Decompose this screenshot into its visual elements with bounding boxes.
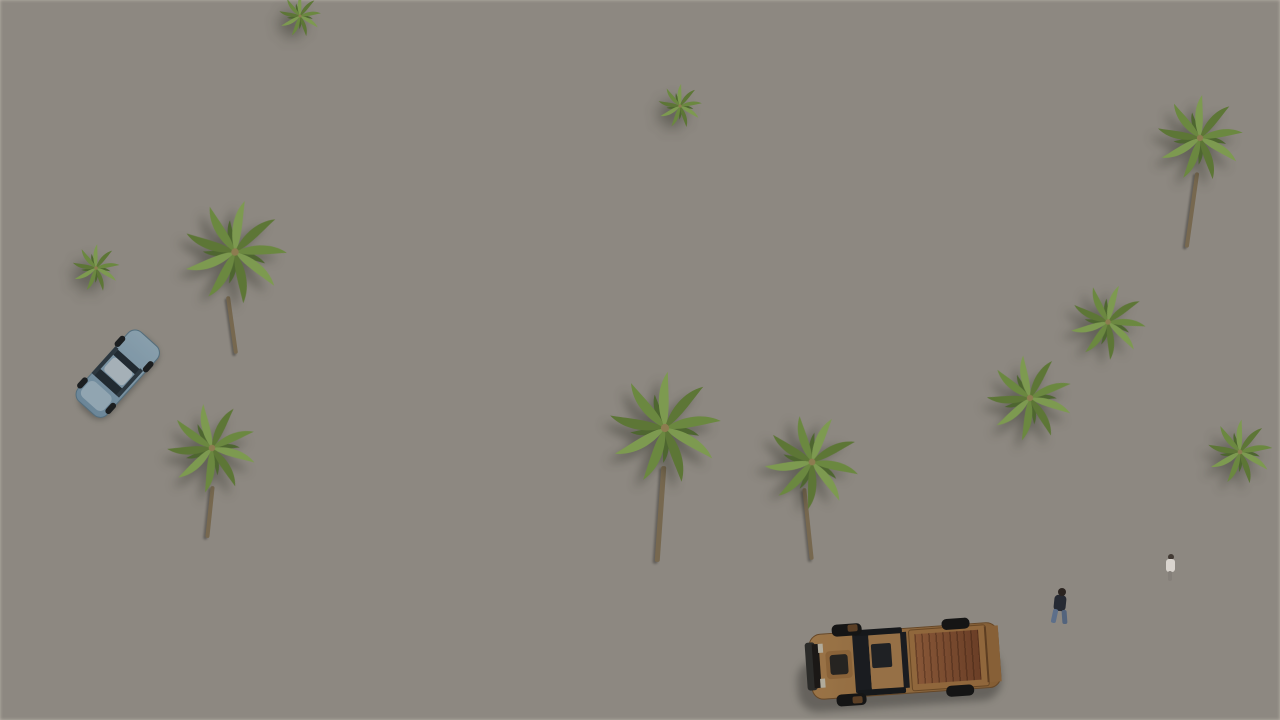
palm-tree — [276, 0, 324, 40]
pedestrian-head — [1058, 588, 1066, 596]
palm-tree — [655, 81, 705, 131]
resident-body — [1166, 559, 1175, 572]
resident-legs — [1168, 571, 1172, 581]
palm-tree — [1203, 415, 1277, 489]
render-viewport — [0, 0, 1280, 720]
palm-tree — [1151, 89, 1249, 187]
palm-tree — [601, 364, 729, 492]
palm-tree — [972, 340, 1088, 456]
palm-tree — [69, 241, 123, 295]
pedestrian-leg — [1062, 610, 1068, 624]
palm-tree — [168, 185, 301, 318]
